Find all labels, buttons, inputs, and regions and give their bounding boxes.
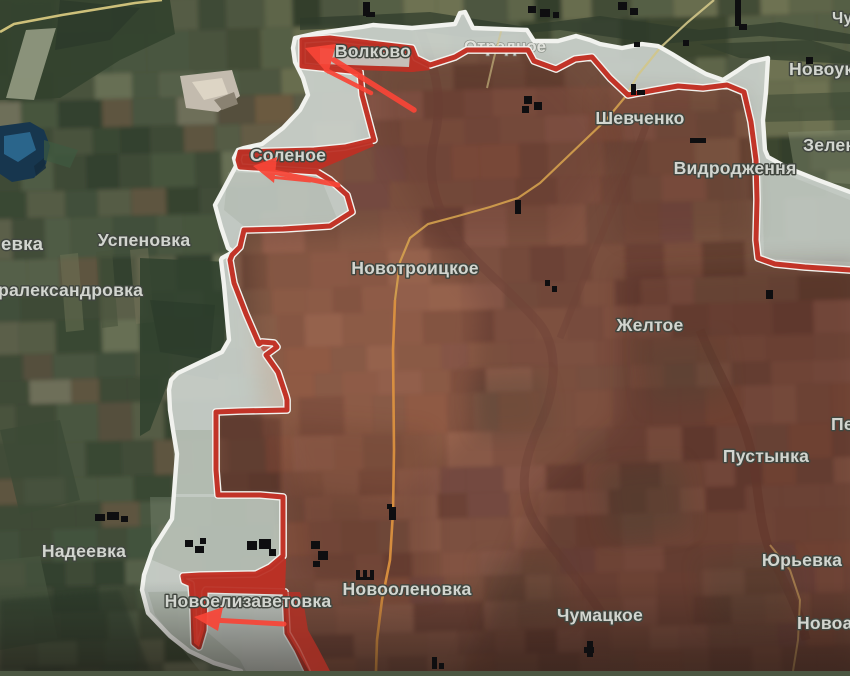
svg-text:Шевченко: Шевченко [595,108,684,128]
svg-text:Надеевка: Надеевка [42,541,126,561]
svg-text:Успеновка: Успеновка [98,230,191,250]
svg-text:Соленое: Соленое [250,145,326,165]
svg-text:Юрьевка: Юрьевка [762,550,842,570]
svg-text:Чумацкое: Чумацкое [557,605,643,625]
svg-text:Новооленовка: Новооленовка [342,579,471,599]
svg-text:Волково: Волково [335,41,411,61]
svg-text:Новотроицкое: Новотроицкое [351,258,479,278]
svg-text:Песчаное: Песчаное [831,414,850,434]
svg-text:Новоандреевка: Новоандреевка [797,613,850,633]
svg-text:Пустынка: Пустынка [723,446,809,466]
svg-text:Желтое: Желтое [616,315,684,335]
svg-text:ралександровка: ралександровка [0,280,143,300]
svg-text:евка: евка [1,233,44,254]
svg-text:Новоукраинка: Новоукраинка [789,59,850,79]
svg-text:Новоелизаветовка: Новоелизаветовка [165,591,332,611]
svg-text:Видродження: Видродження [674,158,797,178]
svg-text:Зеленое: Зеленое [803,135,850,155]
svg-text:Чумаки: Чумаки [832,10,850,27]
